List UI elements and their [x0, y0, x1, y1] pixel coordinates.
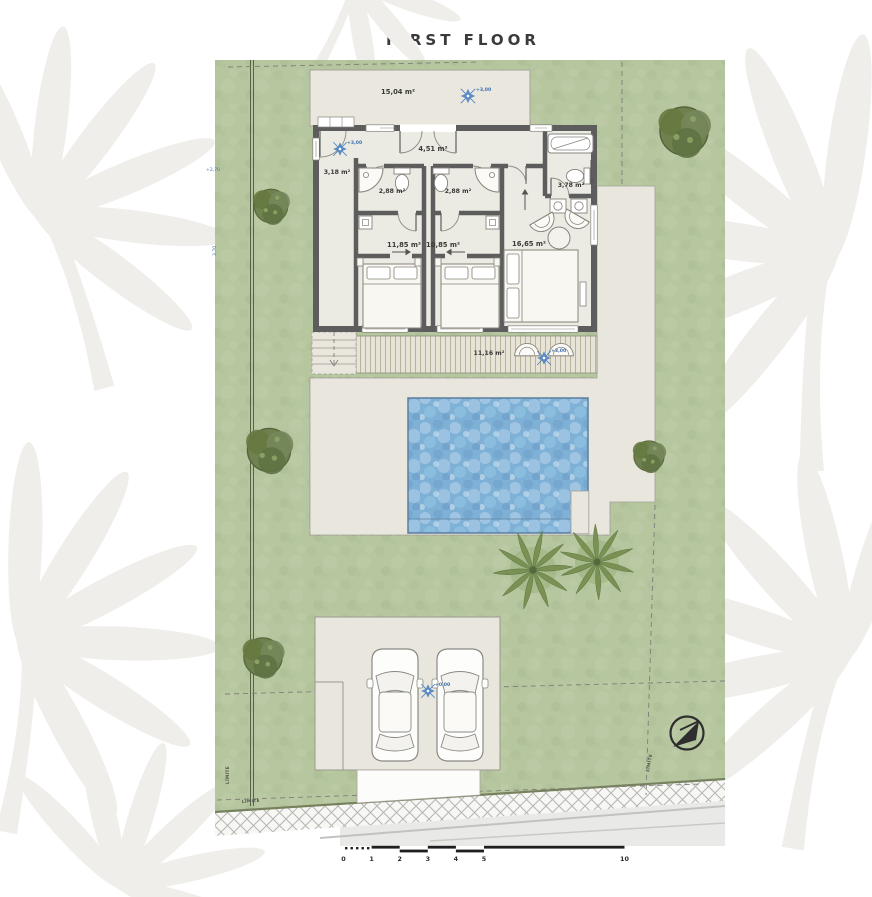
round-table-icon [548, 227, 570, 249]
vanity-icon [486, 216, 499, 229]
area-label-landing: 3,18 m² [324, 169, 351, 176]
area-label-deck-terrace: 11,16 m² [474, 350, 505, 357]
scale-label-4: 4 [454, 855, 459, 863]
scale-bar: 0 1 2 3 4 5 10 [341, 846, 629, 863]
site-plan-drawing: +3,00 +3,00 +3,00 +0,00 15,04 m² 4,51 m²… [0, 0, 872, 897]
scale-label-0: 0 [341, 855, 346, 863]
level-marker-icon [421, 684, 435, 698]
car-icon [432, 649, 488, 761]
level-label-landing: +3,00 [347, 140, 362, 146]
area-label-hall: 4,51 m² [418, 145, 447, 153]
master-bed-icon [504, 250, 586, 322]
area-label-roof-terrace: 15,04 m² [381, 88, 415, 96]
bathtub-icon [548, 134, 593, 153]
area-label-bedroom-1: 11,85 m² [387, 241, 421, 249]
area-label-master-bedroom: 16,65 m² [512, 240, 546, 248]
boundary-label-left-top: +2,70 [206, 167, 220, 173]
area-label-bedroom-2: 10,85 m² [426, 241, 460, 249]
scale-label-10: 10 [620, 855, 629, 863]
bed-icon [363, 264, 421, 328]
scale-label-5: 5 [482, 855, 486, 863]
pool-step [571, 491, 589, 534]
sink-icon [571, 199, 587, 213]
level-marker-icon [537, 351, 551, 365]
area-label-master-bath: 3,78 m² [558, 182, 585, 189]
car-icon [367, 649, 423, 761]
level-label-roof: +3,00 [476, 87, 491, 93]
level-marker-icon [461, 89, 475, 103]
vanity-icon [359, 216, 372, 229]
boundary-label-left-mid: 3,70 [212, 246, 218, 256]
scale-label-3: 3 [426, 855, 430, 863]
level-label-driveway: +0,00 [435, 682, 450, 688]
floor-plan-page: FIRST FLOOR [0, 0, 872, 897]
level-marker-icon [333, 142, 347, 156]
scale-label-1: 1 [369, 855, 373, 863]
building [313, 117, 598, 332]
area-label-bath-2: 2,88 m² [445, 188, 472, 195]
area-label-bath-1: 2,88 m² [379, 188, 406, 195]
sink-icon [550, 199, 566, 213]
swimming-pool [408, 398, 589, 534]
bed-icon [441, 264, 499, 328]
limit-label: LÍMITE [225, 766, 230, 784]
scale-label-2: 2 [397, 855, 401, 863]
level-label-deck: +3,00 [551, 348, 566, 354]
